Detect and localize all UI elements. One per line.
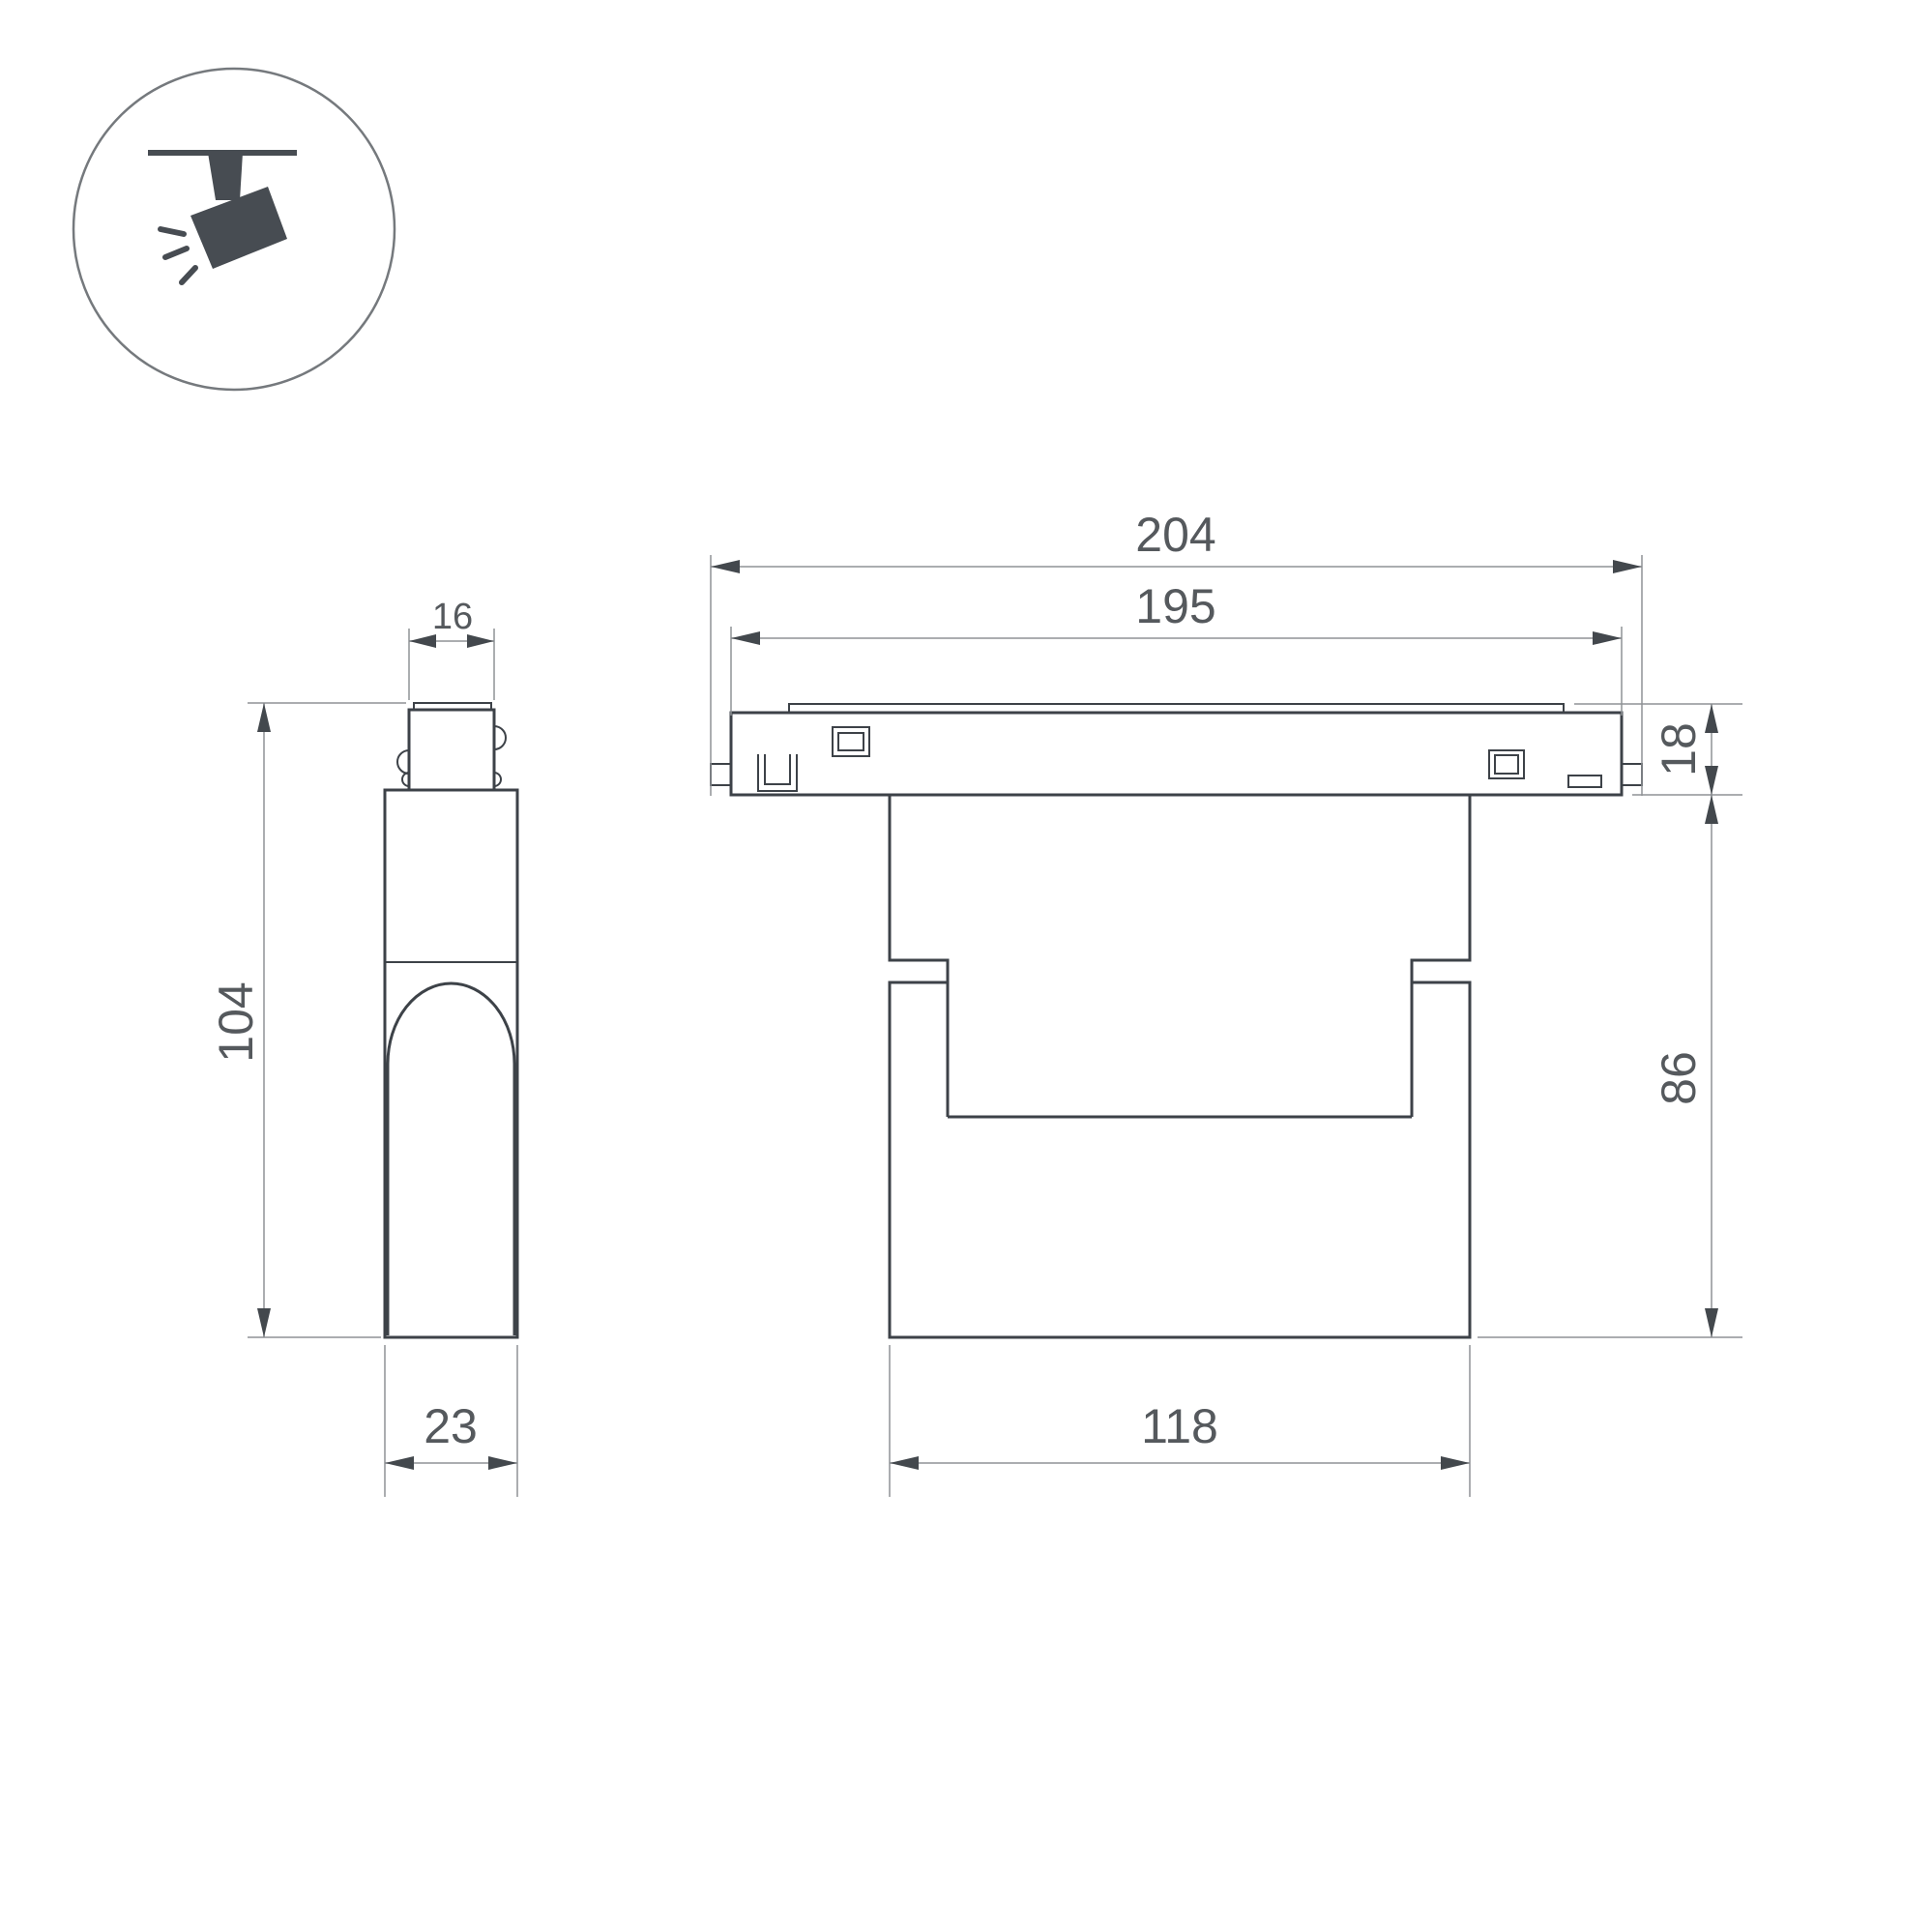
dim-body-width: 118 [890, 1345, 1470, 1497]
side-head-arch [388, 983, 514, 1335]
front-body-outline [890, 796, 1470, 1337]
dim-adapter-width: 16 [409, 597, 494, 700]
track-contact-pin-right [1622, 764, 1642, 785]
dimension-drawing-page: 204 195 16 104 [0, 0, 1932, 1932]
side-view [385, 703, 517, 1337]
track-spotlight-icon [73, 69, 395, 390]
side-clip-right [494, 726, 506, 749]
dim-86-label: 86 [1652, 1051, 1706, 1105]
dim-118-label: 118 [1141, 1399, 1218, 1453]
dim-track-height: 18 [1574, 704, 1742, 795]
dim-23-label: 23 [424, 1399, 478, 1453]
track-slot-right [1568, 776, 1601, 787]
front-view [711, 704, 1642, 1337]
dim-104-label: 104 [209, 981, 263, 1062]
dim-204-label: 204 [1135, 508, 1215, 562]
icon-lamp-head [190, 187, 287, 269]
track-window-right-inner [1495, 755, 1518, 774]
track-bar [731, 713, 1622, 795]
dim-body-height: 86 [1478, 795, 1742, 1337]
track-window-left-inner [838, 733, 864, 750]
dim-18-label: 18 [1652, 722, 1706, 776]
dim-195-label: 195 [1135, 579, 1215, 633]
dim-track-overall-width: 204 [711, 508, 1642, 796]
icon-light-rays-icon [161, 229, 195, 282]
track-contact-pin-left [711, 764, 731, 785]
dim-track-length: 195 [731, 579, 1622, 716]
technical-drawing: 204 195 16 104 [0, 0, 1932, 1932]
dim-body-depth: 23 [385, 1345, 517, 1497]
side-clip-left [397, 750, 409, 774]
icon-mount-stem [208, 153, 243, 200]
dim-total-height: 104 [209, 703, 406, 1337]
dim-16-label: 16 [432, 597, 473, 637]
side-track-adapter [409, 710, 494, 790]
side-body-outline [385, 790, 517, 1337]
track-clip-bracket-inner [765, 754, 790, 784]
